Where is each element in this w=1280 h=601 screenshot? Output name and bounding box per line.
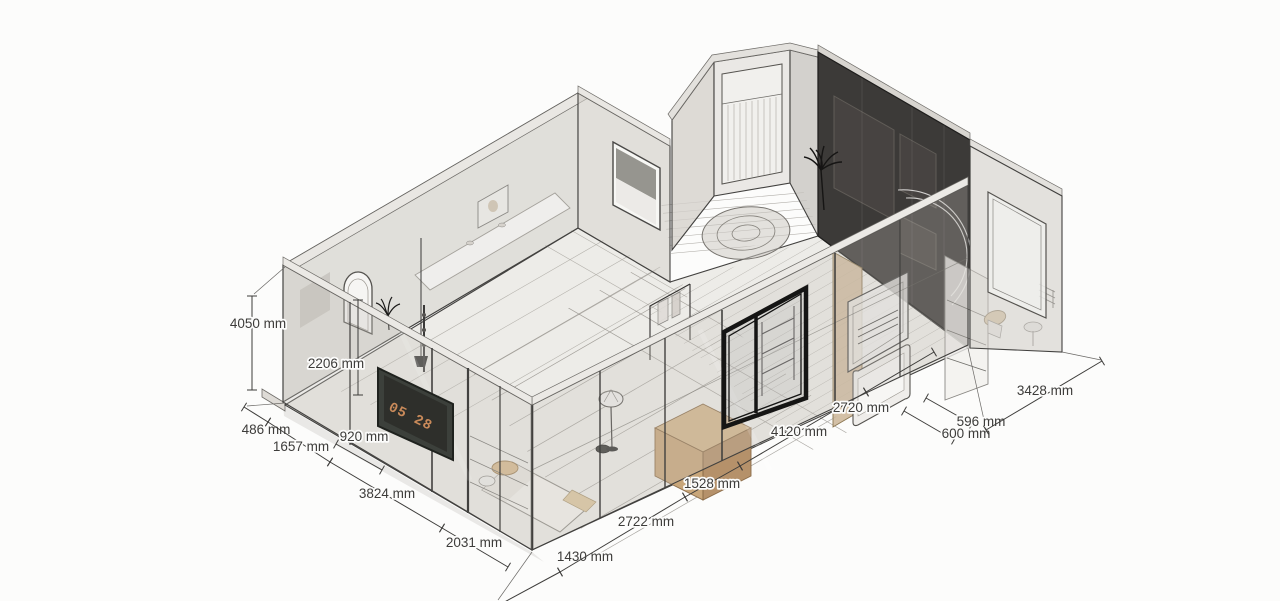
dim-label-2031: 2031 mm	[446, 535, 502, 550]
dim-label-1528: 1528 mm	[684, 476, 740, 491]
dimension-596: 596 mm	[924, 394, 1006, 429]
dimension-wall-height: 4050 mm	[230, 296, 286, 390]
dim-label-2722: 2722 mm	[618, 514, 674, 529]
dimension-600: 600 mm	[901, 407, 990, 445]
dim-label-2720: 2720 mm	[833, 400, 889, 415]
dim-label-600: 600 mm	[942, 426, 991, 441]
dim-label-4050: 4050 mm	[230, 316, 286, 331]
dim-label-4120: 4120 mm	[771, 424, 827, 439]
dim-label-1657: 1657 mm	[273, 439, 329, 454]
floor-plan-stage: 05 28 4050 mm 2206 mm 486 mm 1657 mm 920…	[0, 0, 1280, 601]
dim-label-2206: 2206 mm	[308, 356, 364, 371]
dim-label-3824: 3824 mm	[359, 486, 415, 501]
floor-plan-canvas: 05 28 4050 mm 2206 mm 486 mm 1657 mm 920…	[0, 0, 1280, 601]
dim-label-3428: 3428 mm	[1017, 383, 1073, 398]
dim-label-920: 920 mm	[340, 429, 389, 444]
slab-foot	[262, 389, 285, 411]
bathroom-outer-wall	[970, 139, 1062, 352]
